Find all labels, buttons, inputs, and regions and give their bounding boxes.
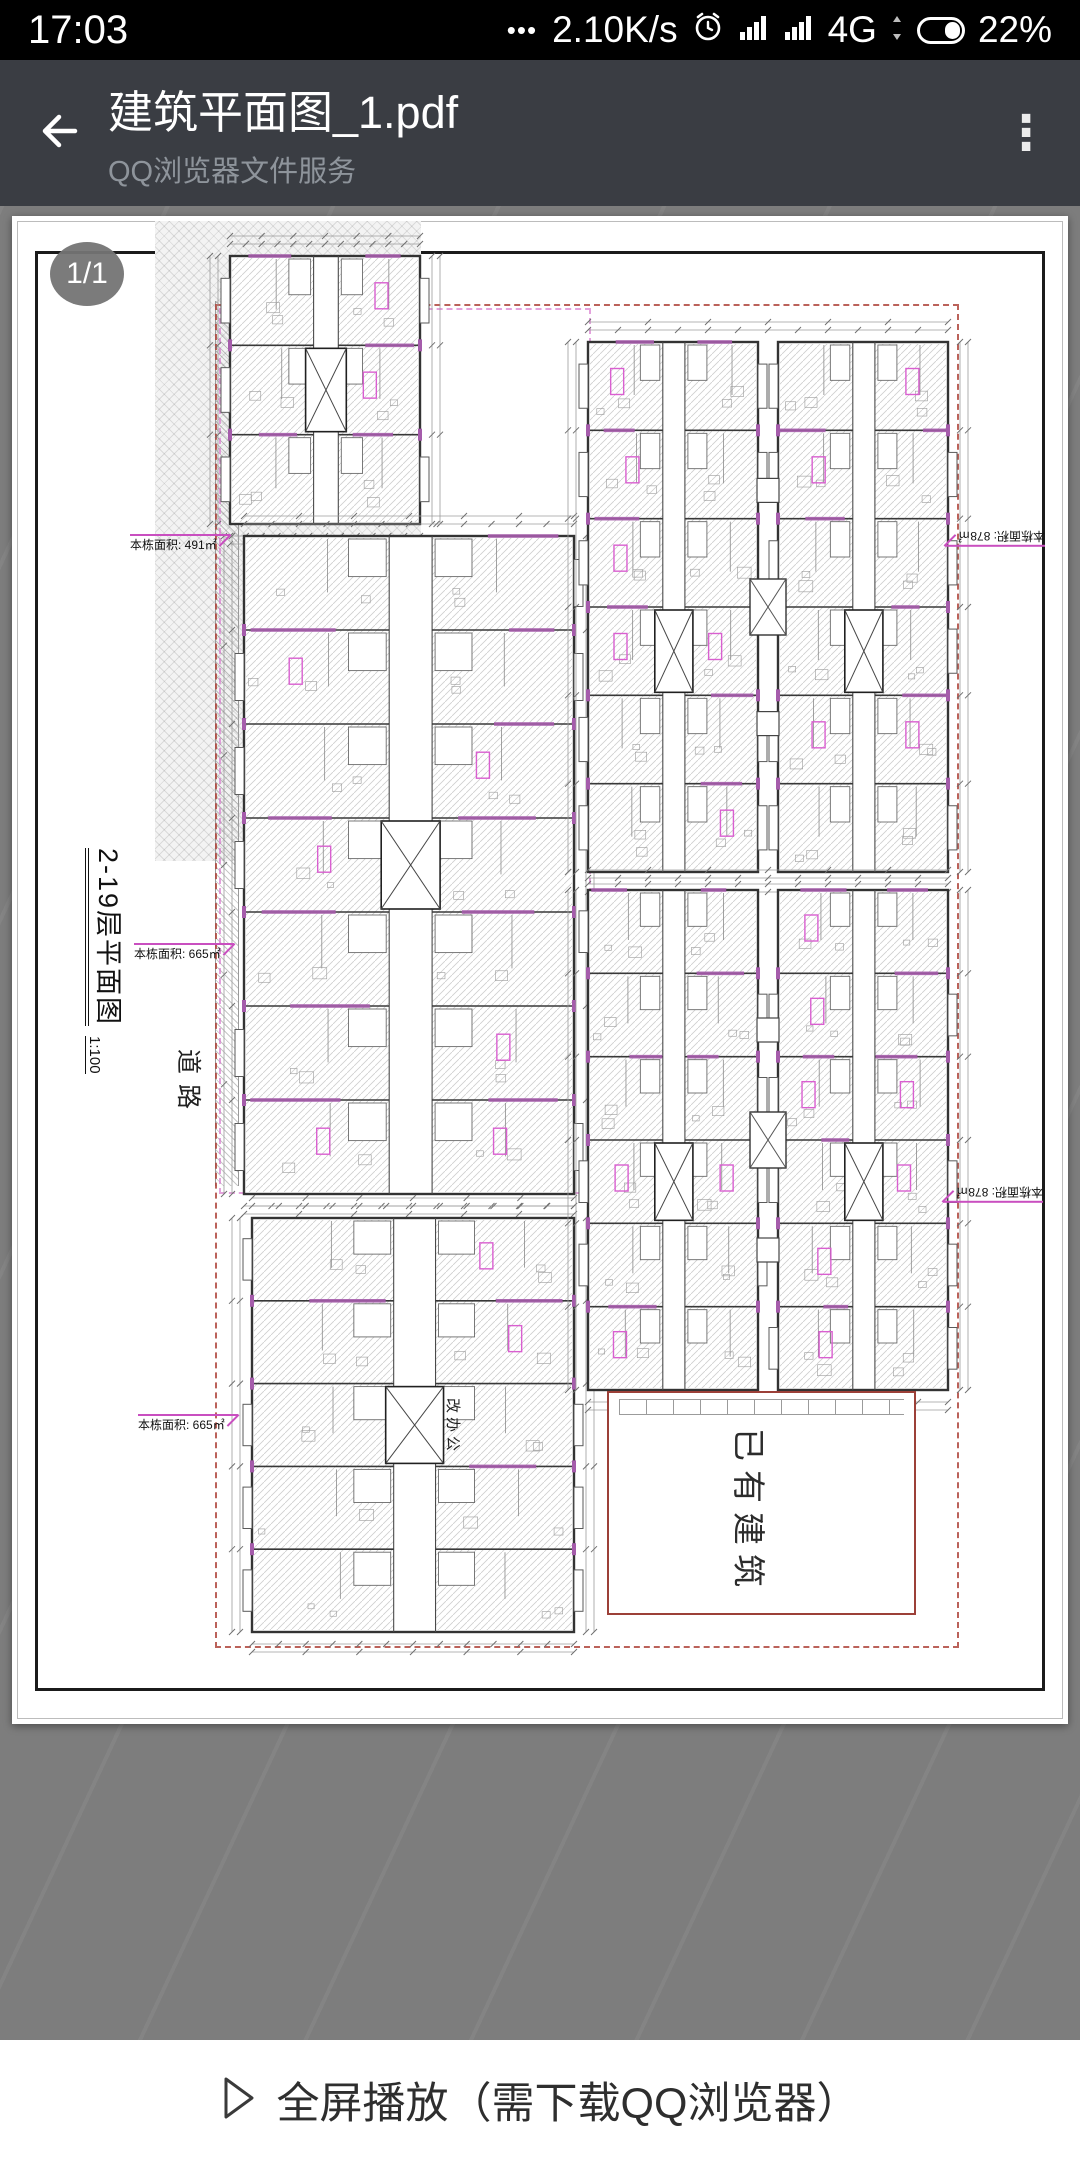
status-right-cluster: ••• 2.10K/s 4G 22%: [507, 9, 1052, 52]
data-arrows-icon: [890, 9, 904, 51]
area-label-right-bottom: 本栋面积: 878㎡: [943, 1184, 1043, 1203]
pdf-viewer[interactable]: 已有建筑 2-19层平面图 1:100 道路 改办公 本栋面积: 491㎡ 本栋…: [0, 206, 1080, 2040]
back-button[interactable]: [22, 83, 96, 183]
building-block-right-bottom: [558, 860, 978, 1420]
existing-building-label: 已有建筑: [727, 1428, 775, 1596]
road-label: 道路: [172, 1049, 208, 1119]
floor-plan: 已有建筑 2-19层平面图 1:100 道路 改办公 本栋面积: 491㎡ 本栋…: [12, 216, 1068, 1724]
area-label-left-middle: 本栋面积: 665㎡: [134, 943, 234, 962]
status-time: 17:03: [28, 8, 128, 53]
area-label-left-top: 本栋面积: 491㎡: [130, 534, 230, 553]
play-icon: [221, 2074, 257, 2127]
fullscreen-play-label: 全屏播放（需下载QQ浏览器）: [277, 2069, 860, 2131]
signal-icon-sim2: [783, 9, 815, 51]
dimension-strip: [619, 1399, 904, 1415]
building-block-left-bottom: [222, 1188, 604, 1662]
header-titles: 建筑平面图_1.pdf QQ浏览器文件服务: [108, 76, 994, 190]
status-bar: 17:03 ••• 2.10K/s 4G 22%: [0, 0, 1080, 60]
plan-title-text: 2-19层平面图: [85, 848, 130, 1026]
bottom-bar: 全屏播放（需下载QQ浏览器）: [0, 2040, 1080, 2160]
back-arrow-icon: [33, 105, 85, 162]
notification-dots-icon: •••: [507, 15, 537, 46]
fullscreen-play-button[interactable]: 全屏播放（需下载QQ浏览器）: [0, 2040, 1080, 2160]
area-label-right-top: 本栋面积: 878㎡: [945, 528, 1045, 547]
kebab-menu-icon: ⋮: [1002, 105, 1050, 161]
building-block-left-middle: [214, 506, 604, 1224]
building-block-left-top: [200, 226, 450, 554]
app-header: 建筑平面图_1.pdf QQ浏览器文件服务 ⋮: [0, 60, 1080, 206]
plan-title: 2-19层平面图 1:100: [85, 848, 130, 1074]
signal-icon-sim1: [738, 9, 770, 51]
page-number-badge: 1/1: [50, 242, 124, 306]
renovation-label: 改办公: [443, 1398, 464, 1455]
phone-screen: 17:03 ••• 2.10K/s 4G 22%: [0, 0, 1080, 2160]
file-title: 建筑平面图_1.pdf: [108, 76, 994, 141]
pdf-page[interactable]: 已有建筑 2-19层平面图 1:100 道路 改办公 本栋面积: 491㎡ 本栋…: [12, 216, 1068, 1724]
plan-scale: 1:100: [85, 1036, 103, 1074]
battery-percent: 22%: [978, 9, 1052, 51]
battery-icon: [917, 17, 965, 44]
file-subtitle: QQ浏览器文件服务: [108, 148, 994, 190]
network-speed: 2.10K/s: [552, 9, 677, 51]
area-label-left-bottom: 本栋面积: 665㎡: [138, 1414, 238, 1433]
building-block-right-top: [558, 312, 978, 902]
menu-button[interactable]: ⋮: [994, 83, 1058, 183]
network-type: 4G: [828, 9, 877, 51]
alarm-icon: [691, 9, 725, 52]
